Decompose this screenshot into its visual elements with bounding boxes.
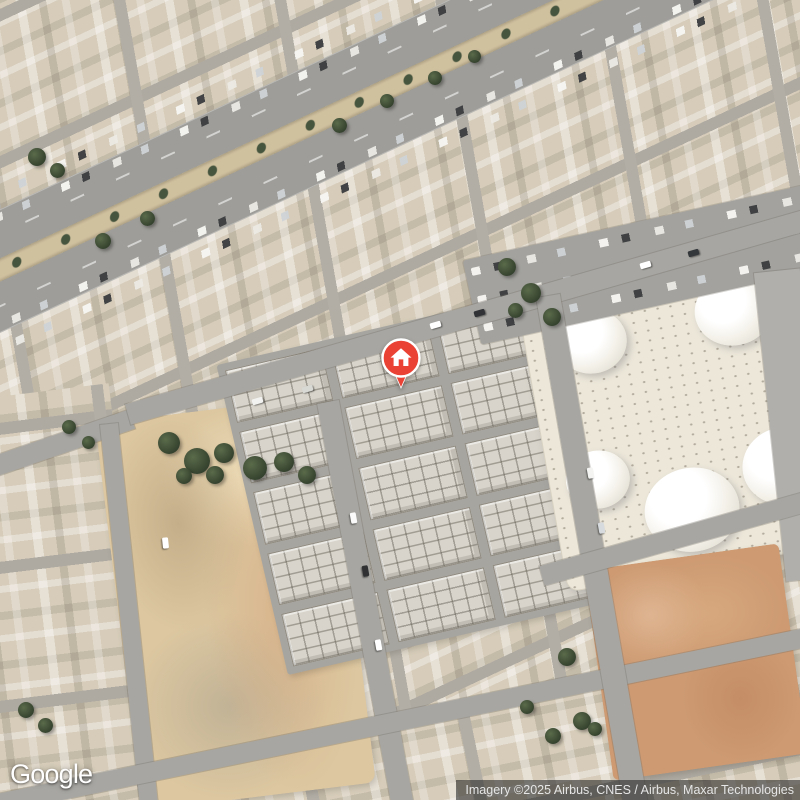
tree bbox=[332, 118, 347, 133]
tree bbox=[274, 452, 294, 472]
map-canvas[interactable]: Google Imagery ©2025 Airbus, CNES / Airb… bbox=[0, 0, 800, 800]
building-shell bbox=[373, 507, 482, 582]
tree bbox=[588, 722, 602, 736]
tree bbox=[206, 466, 224, 484]
tree bbox=[243, 456, 267, 480]
imagery-attribution: Imagery ©2025 Airbus, CNES / Airbus, Max… bbox=[456, 780, 800, 800]
google-logo[interactable]: Google bbox=[10, 759, 92, 790]
tree bbox=[508, 303, 523, 318]
home-marker-icon bbox=[380, 337, 422, 391]
tree bbox=[176, 468, 192, 484]
tree bbox=[140, 211, 155, 226]
tree bbox=[498, 258, 516, 276]
tree bbox=[18, 702, 34, 718]
tree bbox=[558, 648, 576, 666]
tree bbox=[214, 443, 234, 463]
tree bbox=[468, 50, 481, 63]
tree bbox=[545, 728, 561, 744]
tree bbox=[521, 283, 541, 303]
tree bbox=[520, 700, 534, 714]
tree bbox=[428, 71, 442, 85]
tree bbox=[82, 436, 95, 449]
tree bbox=[158, 432, 180, 454]
building-shell bbox=[359, 446, 468, 521]
tree bbox=[28, 148, 46, 166]
car bbox=[162, 537, 169, 549]
building-shell bbox=[344, 385, 453, 460]
tree bbox=[50, 163, 65, 178]
tree bbox=[38, 718, 53, 733]
tree bbox=[95, 233, 111, 249]
tree bbox=[543, 308, 561, 326]
map-pin[interactable] bbox=[380, 337, 422, 391]
tree bbox=[380, 94, 394, 108]
tree bbox=[62, 420, 76, 434]
tree bbox=[298, 466, 316, 484]
